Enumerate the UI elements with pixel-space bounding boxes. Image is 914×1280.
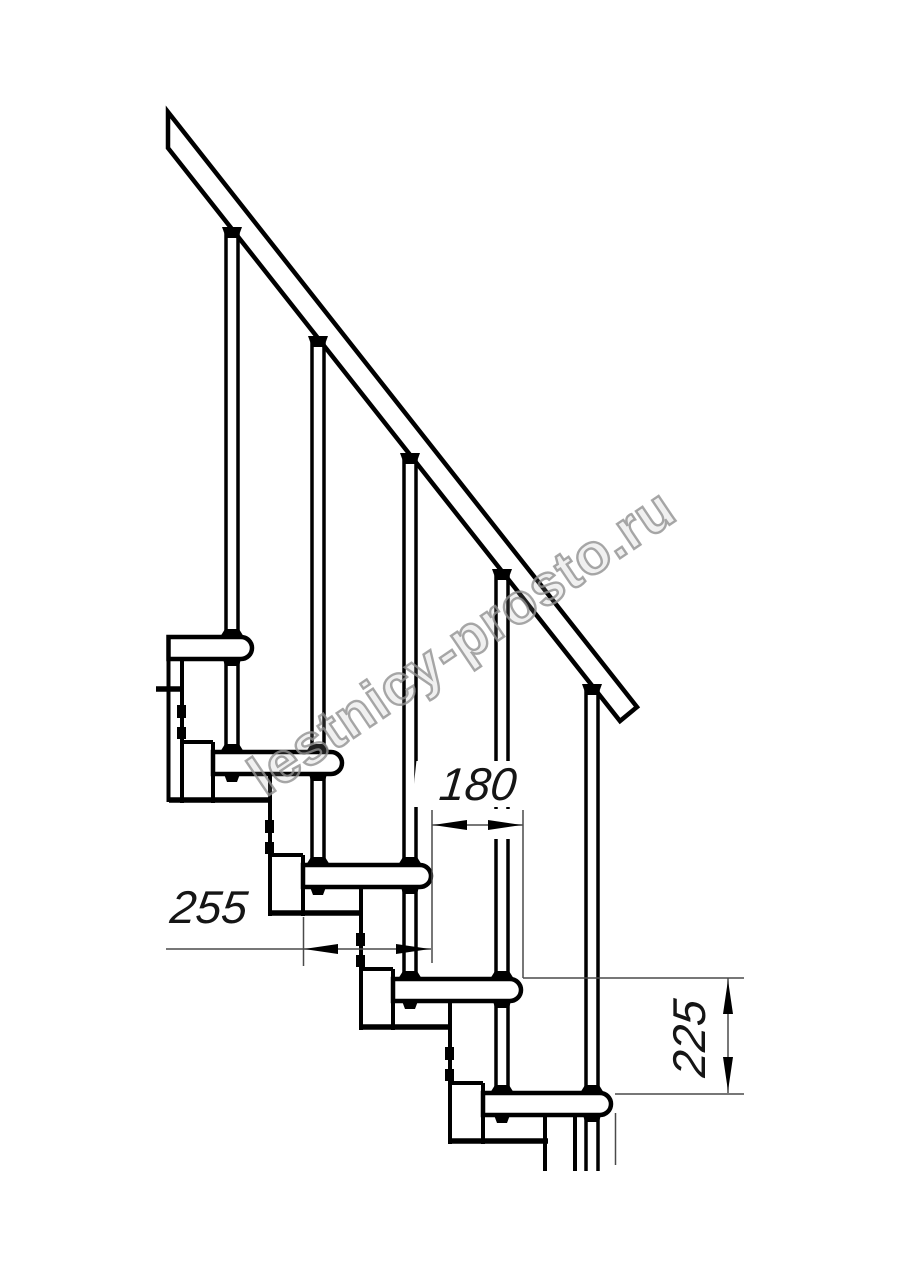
- baluster-foot-flare: [306, 744, 330, 752]
- tread: [213, 752, 342, 774]
- baluster-foot-flare: [220, 744, 244, 752]
- tube-top-cap: [401, 887, 419, 894]
- module-bolt: [265, 842, 274, 854]
- tread: [169, 637, 253, 659]
- tread: [393, 979, 521, 1001]
- dimension-arrowhead: [396, 944, 430, 954]
- module-bolt: [356, 933, 365, 946]
- dimension-arrowhead: [723, 980, 733, 1014]
- dimension-arrowhead: [723, 1057, 733, 1091]
- tube-top-cap: [223, 659, 241, 666]
- module-bolt: [177, 705, 186, 718]
- bolt-head-under-tread: [402, 1001, 418, 1009]
- baluster-foot-flare: [306, 857, 330, 865]
- staircase-elevation-drawing: [0, 0, 914, 1280]
- module-bolt: [356, 955, 365, 967]
- tread: [303, 865, 431, 887]
- module-bolt: [177, 727, 186, 739]
- dimension-label-step-run: 180: [412, 761, 545, 807]
- baluster-foot-flare: [580, 1085, 604, 1093]
- tube-top-cap: [493, 1001, 511, 1008]
- staircase-drawing-page: 180 255 225 lestnicy-prosto.ru: [0, 0, 914, 1280]
- bolt-head-under-tread: [224, 774, 240, 782]
- module-bolt: [265, 820, 274, 833]
- baluster-foot-flare: [220, 629, 244, 637]
- baluster-foot-flare: [490, 971, 514, 979]
- tube-top-cap: [583, 1115, 601, 1122]
- baluster-foot-flare: [398, 857, 422, 865]
- bolt-head-under-tread: [310, 887, 326, 895]
- module-bolt: [445, 1047, 454, 1060]
- dimension-label-tread-depth: 255: [143, 884, 276, 930]
- dimension-arrowhead: [304, 944, 338, 954]
- baluster-foot-flare: [398, 971, 422, 979]
- module-bolt: [445, 1069, 454, 1081]
- dimension-label-step-rise: 225: [666, 972, 712, 1105]
- bolt-head-under-tread: [494, 1115, 510, 1123]
- baluster-foot-flare: [490, 1085, 514, 1093]
- tread: [483, 1093, 611, 1115]
- tube-top-cap: [309, 774, 327, 781]
